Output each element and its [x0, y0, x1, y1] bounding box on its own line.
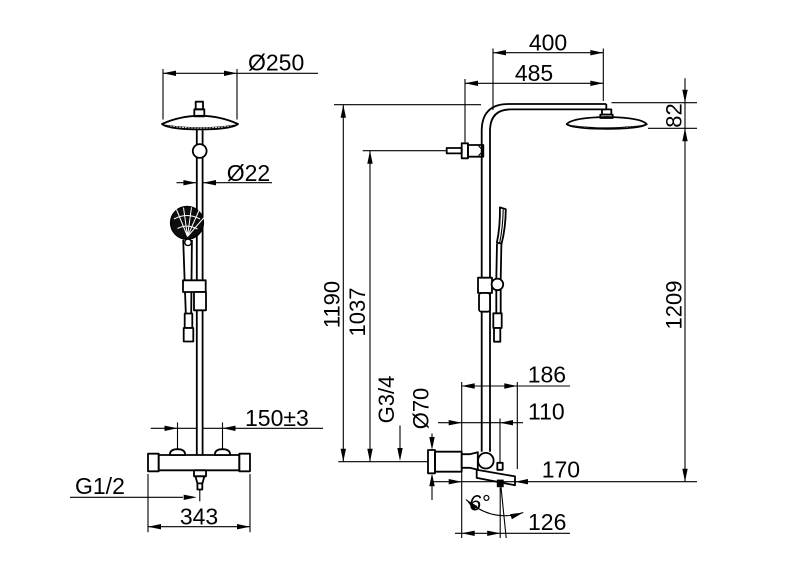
front-holder-sleeve: [194, 292, 206, 310]
dim-label-supply-thread: G3/4: [374, 376, 399, 424]
side-supply-pin: [447, 148, 462, 153]
dim-label-height-to-supply: 1037: [345, 288, 370, 337]
dim-label-mixer-diameter: Ø70: [409, 388, 434, 430]
dim-hose-thread: G1/2: [70, 473, 197, 500]
dim-head-reach: 485: [465, 60, 603, 142]
front-left-union-nut: [170, 449, 185, 455]
front-mixer-left-cap: [148, 454, 159, 472]
dim-label-height-to-arm: 1190: [320, 281, 345, 328]
dim-label-outlet-reach: 126: [528, 509, 566, 535]
front-hose-cuff: [184, 328, 194, 342]
dim-height-to-arm: 1190: [320, 105, 482, 462]
front-hose-fitting: [185, 314, 193, 329]
side-holder-clamp: [478, 278, 492, 293]
dim-supply-thread: G3/4: [374, 376, 403, 461]
dim-label-mixer-width: 343: [180, 504, 218, 530]
dim-head-diameter: Ø250: [163, 50, 318, 120]
front-mixer-right-cap: [239, 454, 250, 472]
dim-label-supply-centre-distance: 150±3: [245, 405, 309, 431]
dim-overall-height: 1209: [662, 281, 688, 482]
side-wall-flange: [462, 143, 468, 158]
side-view: [428, 104, 647, 538]
dim-label-arm-reach: 400: [529, 30, 567, 56]
dim-pipe-diameter: Ø22: [177, 160, 273, 186]
dim-outlet-offset: 110: [438, 398, 565, 463]
front-holder-clamp: [183, 280, 206, 292]
side-holder-slider: [479, 293, 490, 312]
side-mixer-body: [435, 452, 462, 472]
front-handshower-handle: [183, 240, 192, 314]
dim-label-spout-reach: 170: [542, 457, 580, 483]
dim-label-spout-angle: 6°: [469, 491, 490, 516]
dim-label-hose-thread: G1/2: [75, 473, 125, 499]
dim-spout-angle: 6°: [464, 491, 524, 520]
side-hose-cuff: [494, 328, 500, 342]
dim-label-head-diameter: Ø250: [248, 50, 304, 76]
front-outlet-tip: [197, 483, 202, 489]
shower-technical-drawing: Ø250 Ø22 150±3 G1/2 343: [0, 0, 800, 565]
front-ball-joint: [193, 144, 207, 158]
front-mixer-body: [159, 455, 240, 470]
dim-label-head-height: 82: [662, 103, 687, 127]
side-spout: [477, 470, 515, 485]
side-holder-knob: [492, 279, 504, 291]
front-outlet-taper: [195, 476, 204, 483]
drawing-canvas: Ø250 Ø22 150±3 G1/2 343: [0, 0, 800, 565]
side-outlet-reference-lines: [500, 487, 506, 538]
side-handshower-head: [497, 207, 506, 243]
front-handshower-hole: [185, 239, 192, 246]
side-valve-knob: [478, 453, 494, 469]
side-mixer-cap: [428, 450, 435, 473]
front-head-stem: [196, 102, 203, 110]
dim-head-height: 82: [612, 78, 698, 481]
front-right-union-nut: [215, 449, 230, 455]
side-diverter-knob: [497, 463, 502, 470]
side-view-dimensions: 400 485 82 1209 1190: [320, 30, 698, 539]
dim-mixer-diameter: Ø70: [409, 388, 435, 500]
side-spout-outlet: [497, 480, 504, 488]
dim-supply-centre-distance: 150±3: [151, 405, 323, 449]
dim-label-outlet-offset: 110: [528, 398, 565, 424]
dim-label-pipe-diameter: Ø22: [227, 160, 270, 186]
side-valve-bracket: [462, 452, 478, 470]
side-hose-fitting: [493, 313, 501, 328]
dim-label-mixer-depth: 186: [528, 362, 566, 388]
dim-label-head-reach: 485: [515, 60, 553, 86]
dim-label-overall-height: 1209: [662, 281, 687, 330]
